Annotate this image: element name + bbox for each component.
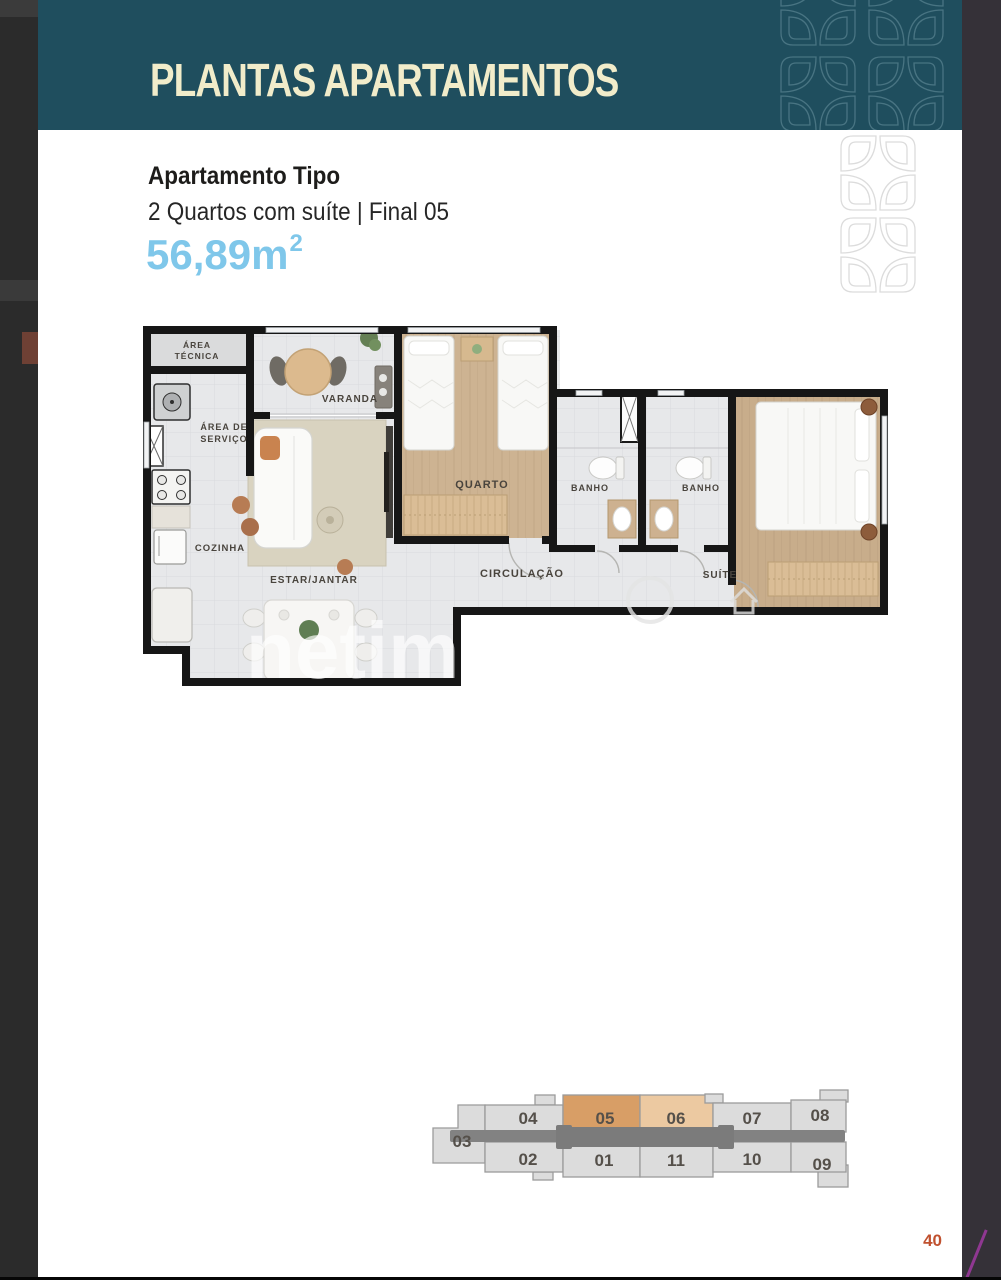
left-strip-highlight-top (0, 0, 38, 17)
building-key-plan: 03 04 05 06 07 08 02 01 11 10 09 (431, 1086, 855, 1198)
apartment-area-value: 56,89m2 (146, 230, 303, 279)
page-number: 40 (882, 1231, 942, 1251)
round-table (285, 349, 331, 395)
right-dark-strip (962, 0, 1001, 1280)
page-title: PLANTAS APARTAMENTOS (150, 53, 619, 107)
unit-02-label: 02 (519, 1150, 538, 1169)
watermark-text: netim (246, 606, 459, 688)
label-area-tecnica-2: TÉCNICA (175, 351, 220, 361)
unit-07-label: 07 (743, 1109, 762, 1128)
label-banho-1: BANHO (571, 483, 609, 493)
label-area-servico: ÁREA DE (200, 422, 247, 432)
label-varanda: VARANDA (322, 394, 378, 405)
petal-pattern-grey (834, 133, 926, 297)
lower-cabinet (152, 588, 192, 642)
document-page: PLANTAS APARTAMENTOS Apartamento Tipo 2 … (38, 0, 962, 1277)
toilet (589, 457, 617, 479)
throw-pillow (260, 436, 280, 460)
nightstand (861, 524, 877, 540)
unit-01-label: 01 (595, 1151, 614, 1170)
pouf (232, 496, 250, 514)
unit-08-label: 08 (811, 1106, 830, 1125)
page-header-band: PLANTAS APARTAMENTOS (38, 0, 962, 130)
unit-11-label: 11 (667, 1151, 685, 1170)
label-banho-2: BANHO (682, 483, 720, 493)
left-dark-strip (0, 0, 38, 1280)
apartment-type-title: Apartamento Tipo (148, 162, 340, 191)
petal-pattern-teal (776, 0, 962, 130)
area-number: 56,89m (146, 231, 288, 278)
unit-04-label: 04 (519, 1109, 538, 1128)
counter (152, 506, 190, 528)
unit-05-label: 05 (596, 1109, 615, 1128)
brochure-page-background: { "header": { "title": "PLANTAS APARTAME… (0, 0, 1001, 1280)
pouf (241, 518, 259, 536)
unit-03-label: 03 (453, 1132, 472, 1151)
left-strip-thumbnail-edge (22, 332, 38, 364)
unit-09-label: 09 (813, 1155, 832, 1174)
toilet (676, 457, 704, 479)
unit-06-label: 06 (667, 1109, 686, 1128)
label-area-servico-2: SERVIÇO (200, 434, 247, 444)
stove (152, 470, 190, 504)
label-area-tecnica: ÁREA (183, 340, 211, 350)
pouf (337, 559, 353, 575)
nightstand (861, 399, 877, 415)
suite-furniture (756, 399, 878, 596)
label-cozinha: COZINHA (195, 543, 245, 554)
apartment-description: 2 Quartos com suíte | Final 05 (148, 198, 449, 227)
left-strip-highlight-mid (0, 280, 38, 301)
label-suite: SUÍTE (703, 568, 737, 581)
floor-plan-image: ÁREA TÉCNICA VARANDA ÁREA DE SERVIÇO COZ… (138, 320, 898, 688)
label-quarto: QUARTO (455, 479, 508, 491)
area-superscript: 2 (289, 230, 302, 257)
unit-10-label: 10 (743, 1150, 762, 1169)
label-circulacao: CIRCULAÇÃO (480, 567, 564, 580)
label-estar-jantar: ESTAR/JANTAR (270, 575, 358, 586)
